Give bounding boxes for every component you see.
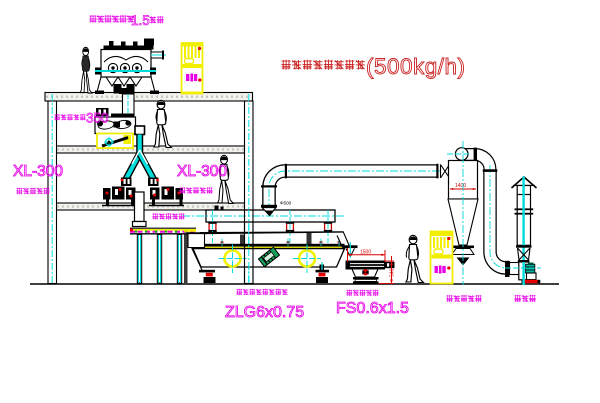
svg-text:ZLG6x0.75: ZLG6x0.75 [225,304,304,321]
svg-text:1500: 1500 [360,249,371,255]
svg-text:XL-300: XL-300 [13,163,63,180]
svg-text:350: 350 [86,111,109,126]
svg-text:(500kg/h): (500kg/h) [366,54,466,79]
svg-text:Φ500: Φ500 [280,201,292,206]
svg-text:FS0.6x1.5: FS0.6x1.5 [336,300,409,317]
svg-text:XL-300: XL-300 [177,163,227,180]
svg-text:1.5: 1.5 [131,13,150,28]
svg-text:1400: 1400 [455,183,466,189]
svg-text:546: 546 [390,268,396,277]
